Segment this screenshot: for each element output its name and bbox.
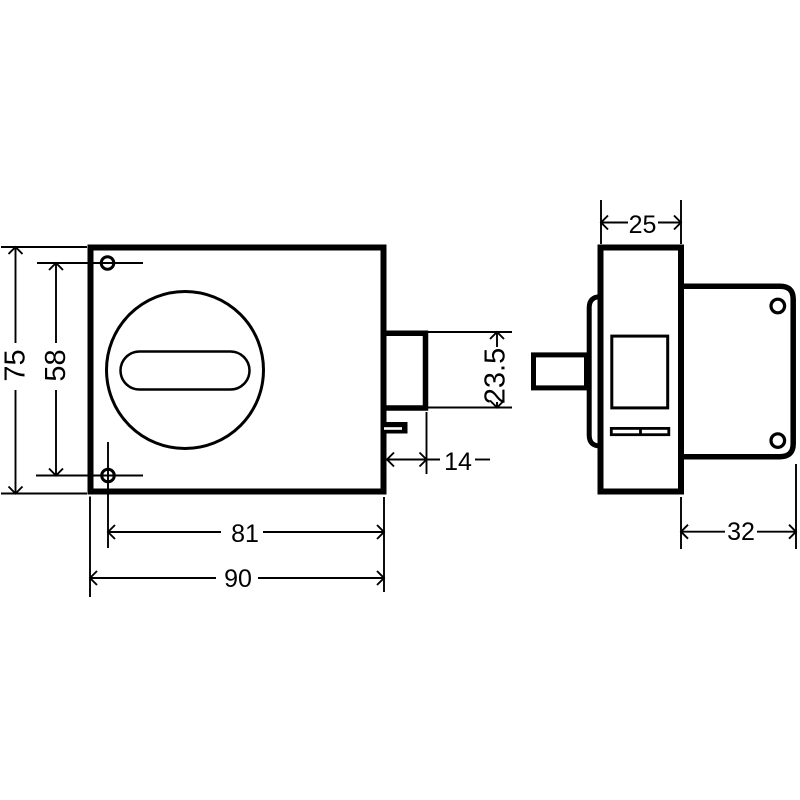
svg-text:58: 58	[40, 349, 72, 381]
svg-text:75: 75	[0, 349, 32, 381]
svg-text:25: 25	[629, 211, 657, 239]
svg-text:23.5: 23.5	[480, 348, 512, 404]
svg-text:90: 90	[224, 565, 252, 593]
svg-text:81: 81	[231, 520, 259, 548]
svg-text:32: 32	[727, 518, 755, 546]
svg-text:14: 14	[444, 448, 472, 476]
